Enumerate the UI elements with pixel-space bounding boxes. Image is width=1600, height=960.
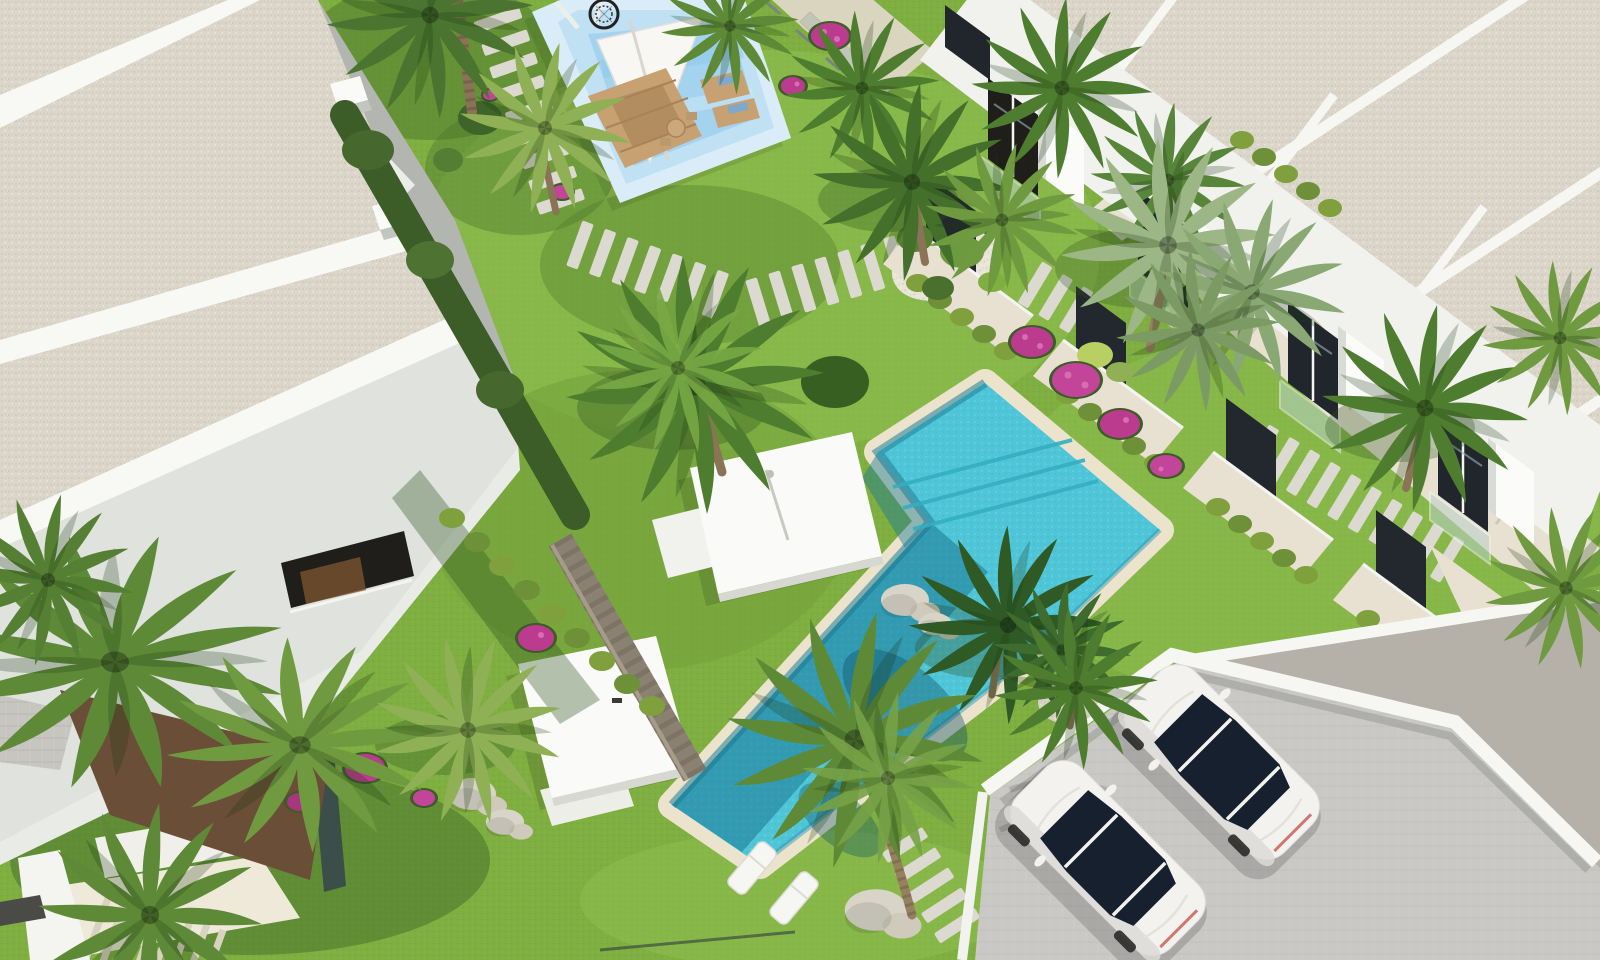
picnic-chair <box>660 138 671 146</box>
picnic-table <box>667 119 685 137</box>
picnic-chair <box>686 112 697 120</box>
hedge-bush <box>406 241 454 279</box>
aerial-render <box>0 0 1600 960</box>
hedge-bush <box>342 130 394 170</box>
hedge-bush <box>476 371 524 409</box>
